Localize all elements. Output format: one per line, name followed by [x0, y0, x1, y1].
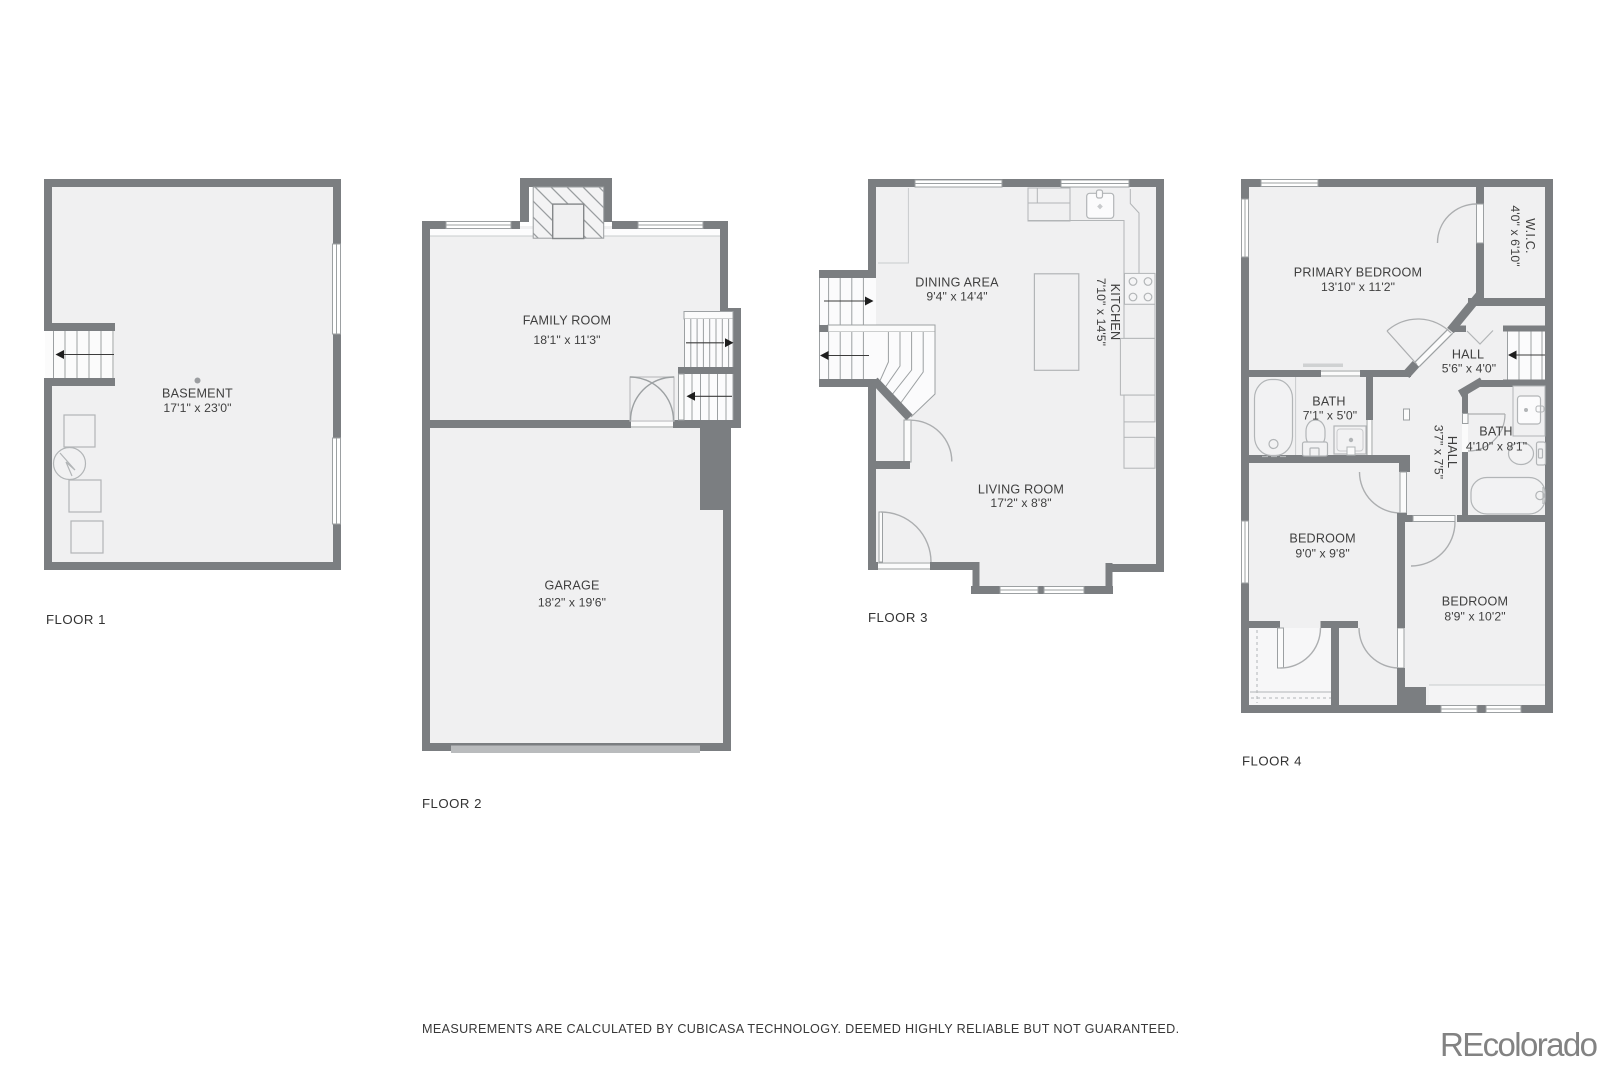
svg-text:HALL: HALL: [1445, 436, 1459, 468]
svg-text:REcolorado: REcolorado: [1440, 1026, 1597, 1063]
svg-text:13'10" x 11'2": 13'10" x 11'2": [1321, 280, 1395, 294]
svg-text:FAMILY ROOM: FAMILY ROOM: [523, 314, 612, 328]
svg-text:LIVING ROOM: LIVING ROOM: [978, 483, 1064, 497]
svg-text:9'4" x 14'4": 9'4" x 14'4": [926, 290, 987, 304]
svg-text:BEDROOM: BEDROOM: [1289, 532, 1355, 546]
svg-text:KITCHEN: KITCHEN: [1108, 284, 1122, 341]
svg-text:BASEMENT: BASEMENT: [162, 387, 233, 401]
svg-text:18'2" x 19'6": 18'2" x 19'6": [538, 596, 606, 610]
svg-text:W.I.C.: W.I.C.: [1523, 218, 1537, 253]
svg-text:18'1" x 11'3": 18'1" x 11'3": [533, 333, 600, 347]
svg-text:BEDROOM: BEDROOM: [1442, 595, 1508, 609]
svg-text:4'10" x 8'1": 4'10" x 8'1": [1466, 440, 1527, 454]
svg-text:FLOOR 4: FLOOR 4: [1242, 754, 1302, 769]
svg-text:4'0" x 6'10": 4'0" x 6'10": [1508, 205, 1522, 266]
svg-text:BATH: BATH: [1479, 425, 1512, 439]
svg-text:FLOOR 1: FLOOR 1: [46, 612, 106, 627]
svg-text:HALL: HALL: [1452, 348, 1484, 362]
svg-text:8'9" x 10'2": 8'9" x 10'2": [1444, 610, 1505, 624]
svg-text:GARAGE: GARAGE: [544, 579, 599, 593]
svg-text:3'7" x 7'5": 3'7" x 7'5": [1432, 425, 1446, 479]
svg-text:7'10" x 14'5": 7'10" x 14'5": [1094, 278, 1108, 346]
svg-text:9'0" x 9'8": 9'0" x 9'8": [1295, 547, 1349, 561]
svg-text:17'1" x 23'0": 17'1" x 23'0": [163, 401, 231, 415]
svg-text:17'2" x 8'8": 17'2" x 8'8": [990, 496, 1051, 510]
svg-text:MEASUREMENTS ARE CALCULATED BY: MEASUREMENTS ARE CALCULATED BY CUBICASA …: [422, 1022, 1179, 1036]
svg-text:FLOOR 2: FLOOR 2: [422, 796, 482, 811]
svg-text:DINING AREA: DINING AREA: [915, 276, 999, 290]
svg-text:5'6" x 4'0": 5'6" x 4'0": [1442, 362, 1496, 376]
svg-text:7'1" x 5'0": 7'1" x 5'0": [1303, 409, 1357, 423]
svg-text:BATH: BATH: [1312, 395, 1345, 409]
svg-text:PRIMARY BEDROOM: PRIMARY BEDROOM: [1294, 266, 1423, 280]
svg-text:FLOOR 3: FLOOR 3: [868, 610, 928, 625]
